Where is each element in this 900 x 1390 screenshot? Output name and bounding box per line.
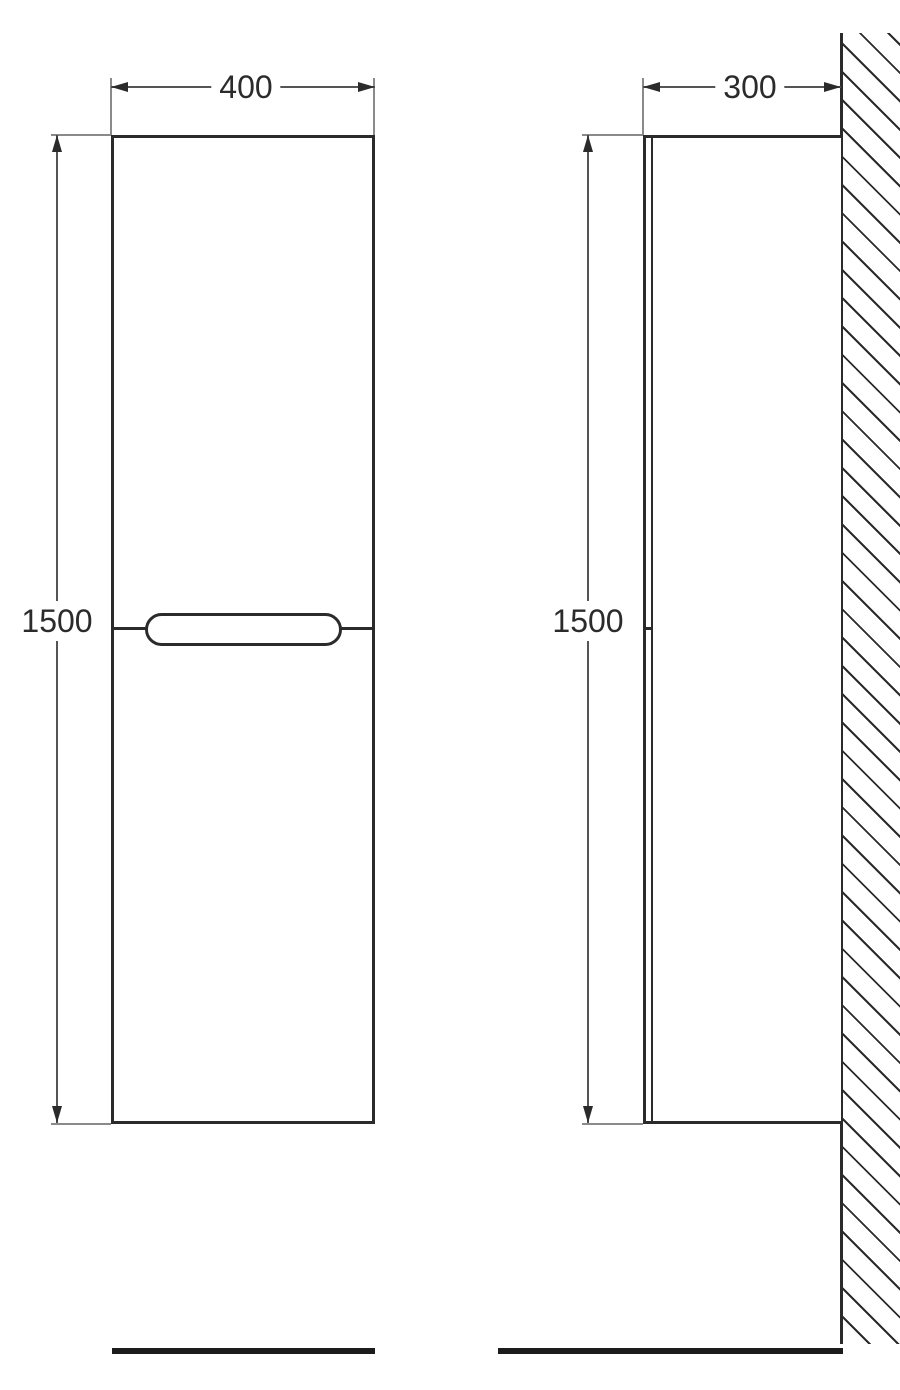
arrow-right-icon [824, 82, 841, 92]
front-door-divider-left [111, 627, 146, 630]
side-door-divider-tick [643, 627, 653, 630]
front-width-dim-label: 400 [211, 67, 280, 107]
floor-line-side [498, 1348, 843, 1354]
technical-drawing: 400 300 1500 1500 [0, 0, 900, 1390]
front-height-dim-label: 1500 [13, 601, 100, 641]
front-height-ext-line-bottom [51, 1123, 111, 1125]
wall-hatching [843, 33, 900, 1344]
arrow-down-icon [52, 1106, 62, 1123]
arrow-left-icon [111, 82, 128, 92]
arrow-right-icon [358, 82, 375, 92]
front-door-divider-right [341, 627, 375, 630]
arrow-up-icon [583, 135, 593, 152]
side-height-dim-label: 1500 [544, 601, 631, 641]
side-cabinet-outline [643, 135, 841, 1124]
side-depth-dim-label: 300 [715, 67, 784, 107]
front-door-handle [145, 613, 342, 646]
arrow-left-icon [643, 82, 660, 92]
side-height-ext-line-bottom [582, 1123, 643, 1125]
arrow-down-icon [583, 1106, 593, 1123]
arrow-up-icon [52, 135, 62, 152]
floor-line-front [112, 1348, 375, 1354]
